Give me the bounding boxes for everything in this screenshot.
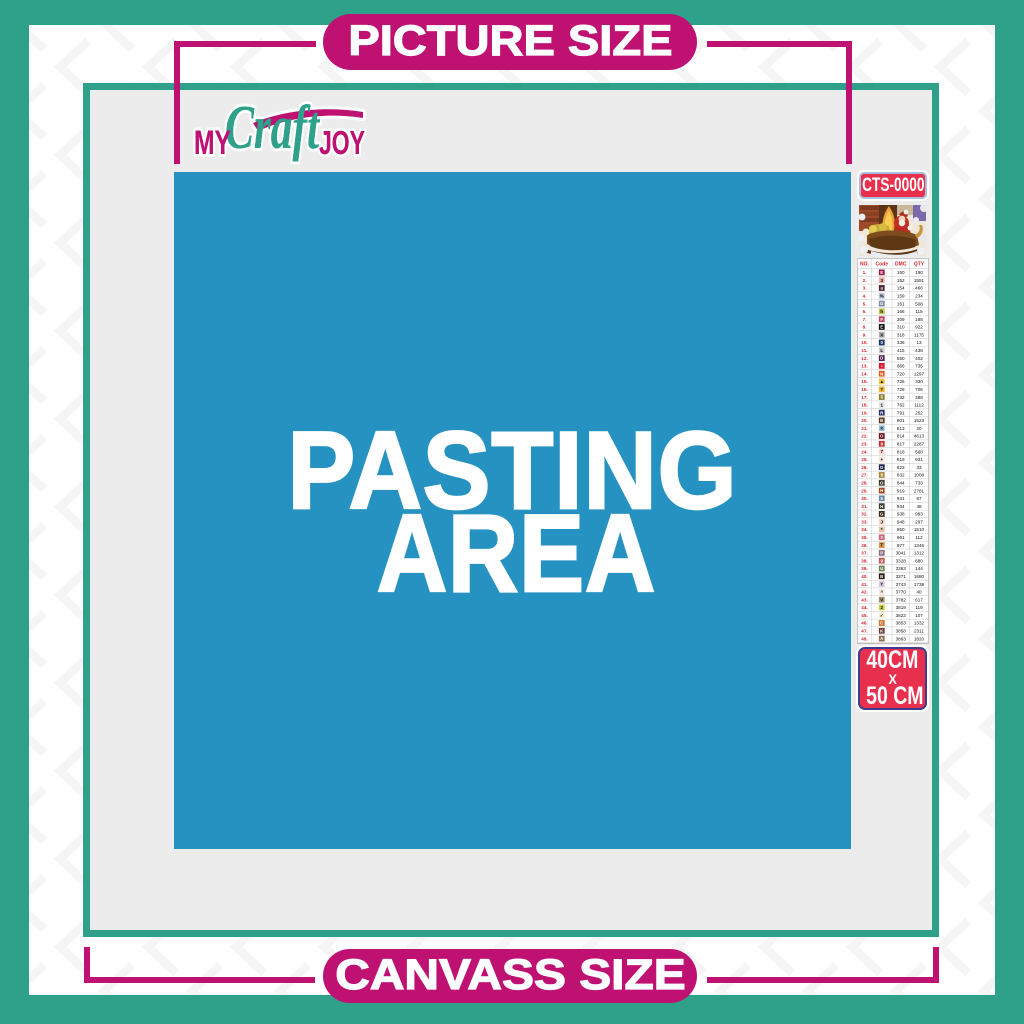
svg-text:2311: 2311 bbox=[914, 629, 924, 634]
svg-text:508: 508 bbox=[915, 301, 923, 306]
svg-text:725: 725 bbox=[897, 379, 905, 384]
svg-text:832: 832 bbox=[897, 473, 905, 478]
svg-text:48.: 48. bbox=[861, 636, 867, 641]
svg-text:934: 934 bbox=[897, 504, 905, 509]
svg-text:MY: MY bbox=[194, 124, 231, 162]
svg-text:33: 33 bbox=[916, 465, 922, 470]
svg-text:31.: 31. bbox=[861, 504, 867, 509]
svg-text:4.: 4. bbox=[863, 293, 867, 298]
svg-text:37.: 37. bbox=[861, 551, 867, 556]
svg-text:NO.: NO. bbox=[860, 262, 870, 268]
svg-text:40: 40 bbox=[916, 590, 922, 595]
svg-text:818: 818 bbox=[897, 449, 905, 454]
svg-text:3858: 3858 bbox=[896, 629, 907, 634]
svg-text:23.: 23. bbox=[861, 442, 867, 447]
svg-text:680: 680 bbox=[915, 558, 923, 563]
svg-text:2.: 2. bbox=[863, 278, 867, 283]
svg-text:40.: 40. bbox=[861, 574, 867, 579]
svg-text:119: 119 bbox=[915, 605, 923, 610]
svg-text:43.: 43. bbox=[861, 597, 867, 602]
svg-text:27.: 27. bbox=[861, 473, 867, 478]
svg-text:5.: 5. bbox=[863, 301, 867, 306]
svg-text:17.: 17. bbox=[861, 395, 867, 400]
svg-text:*: * bbox=[881, 527, 883, 532]
svg-text:152: 152 bbox=[897, 278, 905, 283]
svg-text:47.: 47. bbox=[861, 629, 867, 634]
svg-text:28.: 28. bbox=[861, 480, 867, 485]
svg-text:H: H bbox=[880, 504, 883, 509]
svg-text:JOY: JOY bbox=[319, 124, 365, 161]
svg-text:F: F bbox=[880, 317, 883, 322]
svg-text:2287: 2287 bbox=[914, 442, 925, 447]
svg-text:190: 190 bbox=[915, 270, 923, 275]
svg-text:1523: 1523 bbox=[914, 418, 925, 423]
svg-text:336: 336 bbox=[897, 340, 905, 345]
svg-text:29.: 29. bbox=[861, 488, 867, 493]
svg-text:14.: 14. bbox=[861, 371, 867, 376]
svg-text:402: 402 bbox=[915, 356, 923, 361]
svg-text:112: 112 bbox=[915, 535, 923, 540]
svg-text:550: 550 bbox=[897, 356, 905, 361]
svg-text:O: O bbox=[880, 434, 884, 439]
svg-text:12.: 12. bbox=[861, 356, 867, 361]
svg-text:330: 330 bbox=[915, 379, 923, 384]
svg-text:732: 732 bbox=[897, 395, 905, 400]
svg-text:7.: 7. bbox=[863, 317, 867, 322]
svg-text:3782: 3782 bbox=[896, 597, 907, 602]
svg-text:919: 919 bbox=[897, 488, 905, 493]
svg-text:3328: 3328 bbox=[896, 558, 907, 563]
svg-text:4613: 4613 bbox=[914, 434, 925, 439]
svg-text:1297: 1297 bbox=[914, 371, 925, 376]
svg-text:234: 234 bbox=[915, 293, 923, 298]
svg-text:67: 67 bbox=[916, 496, 922, 501]
svg-text:3819: 3819 bbox=[896, 605, 907, 610]
svg-text:20: 20 bbox=[916, 426, 922, 431]
svg-text:3743: 3743 bbox=[896, 582, 907, 587]
svg-text:922: 922 bbox=[915, 325, 923, 330]
svg-text:10.: 10. bbox=[861, 340, 867, 345]
svg-text:U: U bbox=[880, 566, 883, 571]
svg-text:11.: 11. bbox=[861, 348, 867, 353]
svg-text:QTY: QTY bbox=[914, 262, 925, 268]
svg-text:1510: 1510 bbox=[914, 527, 925, 532]
svg-text:P: P bbox=[880, 551, 883, 556]
svg-text:D: D bbox=[880, 356, 883, 361]
svg-text:617: 617 bbox=[915, 597, 923, 602]
svg-text:3041: 3041 bbox=[896, 551, 907, 556]
svg-text:▲: ▲ bbox=[880, 379, 884, 384]
svg-text:8.: 8. bbox=[863, 325, 867, 330]
svg-text:48: 48 bbox=[916, 504, 922, 509]
svg-text:948: 948 bbox=[897, 519, 905, 524]
svg-text:B: B bbox=[880, 574, 883, 579]
svg-text:36.: 36. bbox=[861, 543, 867, 548]
svg-text:666: 666 bbox=[897, 364, 905, 369]
svg-text:3371: 3371 bbox=[896, 574, 907, 579]
svg-text:814: 814 bbox=[897, 434, 905, 439]
svg-text:32.: 32. bbox=[861, 512, 867, 517]
svg-text:977: 977 bbox=[897, 543, 905, 548]
svg-text:107: 107 bbox=[915, 613, 923, 618]
svg-text:318: 318 bbox=[897, 332, 905, 337]
svg-text:25.: 25. bbox=[861, 457, 867, 462]
svg-text:38.: 38. bbox=[861, 558, 867, 563]
svg-text:^: ^ bbox=[880, 589, 883, 594]
svg-text:?: ? bbox=[880, 387, 883, 392]
svg-text:791: 791 bbox=[897, 410, 905, 415]
svg-text:44.: 44. bbox=[861, 605, 867, 610]
svg-text:Y: Y bbox=[880, 582, 883, 587]
svg-text:706: 706 bbox=[915, 387, 923, 392]
svg-text:1112: 1112 bbox=[914, 403, 924, 408]
svg-text:G: G bbox=[880, 301, 884, 306]
svg-text:T: T bbox=[880, 543, 883, 548]
svg-text:6.: 6. bbox=[863, 309, 867, 314]
svg-text:16.: 16. bbox=[861, 387, 867, 392]
svg-text:V: V bbox=[880, 597, 883, 602]
svg-text:41.: 41. bbox=[861, 582, 867, 587]
svg-text:819: 819 bbox=[897, 457, 905, 462]
svg-text:20.: 20. bbox=[861, 418, 867, 423]
svg-text:30.: 30. bbox=[861, 496, 867, 501]
svg-text:15.: 15. bbox=[861, 379, 867, 384]
svg-text:388: 388 bbox=[915, 395, 923, 400]
svg-text:309: 309 bbox=[897, 317, 905, 322]
svg-text:161: 161 bbox=[897, 301, 905, 306]
svg-text:310: 310 bbox=[897, 325, 905, 330]
svg-text:2781: 2781 bbox=[914, 488, 925, 493]
svg-text:9.: 9. bbox=[863, 332, 867, 337]
svg-text:Craft: Craft bbox=[225, 94, 320, 162]
svg-text:993: 993 bbox=[915, 512, 923, 517]
svg-text:L: L bbox=[880, 348, 883, 353]
svg-text:1738: 1738 bbox=[914, 582, 925, 587]
svg-text:+: + bbox=[880, 457, 883, 462]
svg-text:144: 144 bbox=[915, 566, 923, 571]
svg-text:1008: 1008 bbox=[914, 473, 925, 478]
svg-text:154: 154 bbox=[897, 286, 905, 291]
svg-text:1346: 1346 bbox=[914, 543, 925, 548]
svg-text:1551: 1551 bbox=[914, 278, 925, 283]
svg-text:568: 568 bbox=[915, 449, 923, 454]
svg-text:D: D bbox=[880, 465, 883, 470]
svg-text:166: 166 bbox=[897, 309, 905, 314]
svg-text:733: 733 bbox=[915, 480, 923, 485]
svg-text:h: h bbox=[880, 309, 883, 314]
svg-text:762: 762 bbox=[897, 403, 905, 408]
svg-text:O: O bbox=[880, 480, 884, 485]
svg-text:1.: 1. bbox=[863, 270, 867, 275]
svg-text:1680: 1680 bbox=[914, 574, 925, 579]
svg-text:%: % bbox=[880, 293, 884, 298]
svg-text:3853: 3853 bbox=[896, 621, 907, 626]
svg-text:1332: 1332 bbox=[914, 621, 925, 626]
svg-text:✓: ✓ bbox=[880, 613, 884, 618]
svg-text:H: H bbox=[880, 488, 883, 493]
svg-text:931: 931 bbox=[915, 457, 923, 462]
svg-text:13.: 13. bbox=[861, 364, 867, 369]
svg-text:159: 159 bbox=[897, 293, 905, 298]
svg-text:13: 13 bbox=[916, 340, 922, 345]
svg-text:1175: 1175 bbox=[914, 332, 924, 337]
svg-text:E: E bbox=[880, 270, 883, 275]
svg-text:34.: 34. bbox=[861, 527, 867, 532]
svg-text:3823: 3823 bbox=[896, 613, 907, 618]
svg-text:3363: 3363 bbox=[896, 566, 907, 571]
svg-text:46.: 46. bbox=[861, 621, 867, 626]
svg-text:G: G bbox=[880, 512, 884, 517]
svg-text:950: 950 bbox=[897, 527, 905, 532]
svg-text:39.: 39. bbox=[861, 566, 867, 571]
svg-text:813: 813 bbox=[897, 426, 905, 431]
svg-text:1312: 1312 bbox=[914, 551, 925, 556]
svg-text:735: 735 bbox=[915, 364, 923, 369]
svg-text:728: 728 bbox=[897, 387, 905, 392]
svg-text:438: 438 bbox=[915, 348, 923, 353]
svg-text:DMC: DMC bbox=[895, 262, 907, 268]
svg-text:E: E bbox=[880, 325, 883, 330]
svg-text:35.: 35. bbox=[861, 535, 867, 540]
svg-text:188: 188 bbox=[915, 317, 923, 322]
svg-text:1820: 1820 bbox=[914, 636, 925, 641]
svg-text:961: 961 bbox=[897, 535, 905, 540]
svg-text:297: 297 bbox=[915, 519, 923, 524]
svg-text:N: N bbox=[880, 371, 883, 376]
svg-text:415: 415 bbox=[897, 348, 905, 353]
svg-text:150: 150 bbox=[897, 270, 905, 275]
svg-text:18.: 18. bbox=[861, 403, 867, 408]
svg-text:3863: 3863 bbox=[896, 636, 907, 641]
svg-text:817: 817 bbox=[897, 442, 905, 447]
svg-text:931: 931 bbox=[897, 496, 905, 501]
svg-text:252: 252 bbox=[915, 410, 923, 415]
svg-text:Code: Code bbox=[876, 262, 889, 268]
svg-text:938: 938 bbox=[897, 512, 905, 517]
svg-text:19.: 19. bbox=[861, 410, 867, 415]
svg-text:24.: 24. bbox=[861, 449, 867, 454]
svg-text:823: 823 bbox=[897, 465, 905, 470]
svg-text:42.: 42. bbox=[861, 590, 867, 595]
svg-text:22.: 22. bbox=[861, 434, 867, 439]
svg-text:21.: 21. bbox=[861, 426, 867, 431]
svg-text:844: 844 bbox=[897, 480, 905, 485]
svg-text:X: X bbox=[880, 332, 883, 337]
svg-text:3770: 3770 bbox=[896, 590, 907, 595]
svg-text:466: 466 bbox=[915, 286, 923, 291]
svg-text:720: 720 bbox=[897, 371, 905, 376]
svg-text:B: B bbox=[880, 418, 883, 423]
svg-text:115: 115 bbox=[915, 309, 923, 314]
svg-text:801: 801 bbox=[897, 418, 905, 423]
svg-text:33.: 33. bbox=[861, 519, 867, 524]
svg-text:26.: 26. bbox=[861, 465, 867, 470]
svg-text:45.: 45. bbox=[861, 613, 867, 618]
svg-text:3.: 3. bbox=[863, 286, 867, 291]
